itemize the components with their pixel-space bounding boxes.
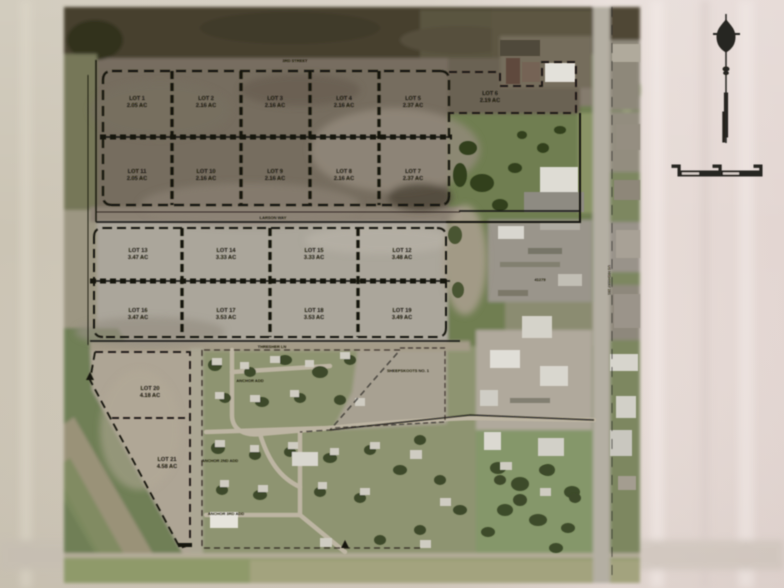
svg-text:ANCHOR 3RD ADD: ANCHOR 3RD ADD bbox=[208, 511, 244, 516]
svg-text:SHEEPSKOOTS NO. 1: SHEEPSKOOTS NO. 1 bbox=[387, 368, 430, 373]
svg-text:LOT 17: LOT 17 bbox=[217, 308, 236, 314]
svg-text:LOT 15: LOT 15 bbox=[305, 248, 324, 254]
svg-text:LOT 5: LOT 5 bbox=[405, 96, 421, 102]
svg-text:4.18 AC: 4.18 AC bbox=[140, 393, 160, 399]
svg-text:2.05 AC: 2.05 AC bbox=[127, 176, 147, 182]
svg-text:2.05 AC: 2.05 AC bbox=[127, 103, 147, 109]
svg-text:ANCHOR 2ND ADD: ANCHOR 2ND ADD bbox=[202, 458, 238, 463]
svg-text:LOT 1: LOT 1 bbox=[129, 96, 145, 102]
svg-text:LOT 4: LOT 4 bbox=[336, 96, 353, 102]
svg-text:LOT 16: LOT 16 bbox=[129, 308, 148, 314]
svg-text:3.53 AC: 3.53 AC bbox=[216, 315, 236, 321]
svg-text:3.48 AC: 3.48 AC bbox=[392, 255, 412, 261]
svg-text:LOT 12: LOT 12 bbox=[393, 248, 412, 254]
svg-text:3.47 AC: 3.47 AC bbox=[128, 315, 148, 321]
svg-text:THRESHER LN: THRESHER LN bbox=[258, 344, 287, 349]
svg-text:LOT 7: LOT 7 bbox=[405, 169, 421, 175]
svg-text:3.49 AC: 3.49 AC bbox=[392, 315, 412, 321]
svg-text:LOT 21: LOT 21 bbox=[158, 457, 177, 463]
svg-text:LOT 6: LOT 6 bbox=[482, 91, 498, 97]
svg-text:4.58 AC: 4.58 AC bbox=[157, 464, 177, 470]
svg-text:LOT 20: LOT 20 bbox=[141, 386, 160, 392]
svg-text:LOT 18: LOT 18 bbox=[305, 308, 324, 314]
svg-text:3.33 AC: 3.33 AC bbox=[304, 255, 324, 261]
svg-text:3.33 AC: 3.33 AC bbox=[216, 255, 236, 261]
svg-text:LOT 14: LOT 14 bbox=[217, 248, 237, 254]
svg-text:2.16 AC: 2.16 AC bbox=[265, 176, 285, 182]
svg-text:41279: 41279 bbox=[534, 277, 546, 282]
svg-text:2.16 AC: 2.16 AC bbox=[196, 176, 216, 182]
svg-text:2.19 AC: 2.19 AC bbox=[480, 98, 500, 104]
svg-text:US HIGHWAY 281: US HIGHWAY 281 bbox=[607, 265, 611, 295]
svg-text:LOT 8: LOT 8 bbox=[336, 169, 352, 175]
svg-text:LOT 3: LOT 3 bbox=[267, 96, 283, 102]
svg-text:2.16 AC: 2.16 AC bbox=[334, 103, 354, 109]
svg-text:LOT 19: LOT 19 bbox=[393, 308, 412, 314]
svg-text:LARSON WAY: LARSON WAY bbox=[260, 215, 287, 220]
svg-text:LOT 13: LOT 13 bbox=[129, 248, 148, 254]
svg-text:2.37 AC: 2.37 AC bbox=[403, 176, 423, 182]
svg-text:2.16 AC: 2.16 AC bbox=[334, 176, 354, 182]
svg-text:LOT 10: LOT 10 bbox=[197, 169, 216, 175]
svg-text:3RD STREET: 3RD STREET bbox=[283, 58, 308, 63]
svg-text:LOT 9: LOT 9 bbox=[267, 169, 283, 175]
svg-text:LOT 2: LOT 2 bbox=[198, 96, 214, 102]
svg-text:LOT 11: LOT 11 bbox=[128, 169, 147, 175]
svg-text:3.47 AC: 3.47 AC bbox=[128, 255, 148, 261]
svg-text:ANCHOR ADD: ANCHOR ADD bbox=[236, 378, 263, 383]
svg-text:2.37 AC: 2.37 AC bbox=[403, 103, 423, 109]
svg-text:2.16 AC: 2.16 AC bbox=[265, 103, 285, 109]
svg-text:2.16 AC: 2.16 AC bbox=[196, 103, 216, 109]
svg-text:3.53 AC: 3.53 AC bbox=[304, 315, 324, 321]
